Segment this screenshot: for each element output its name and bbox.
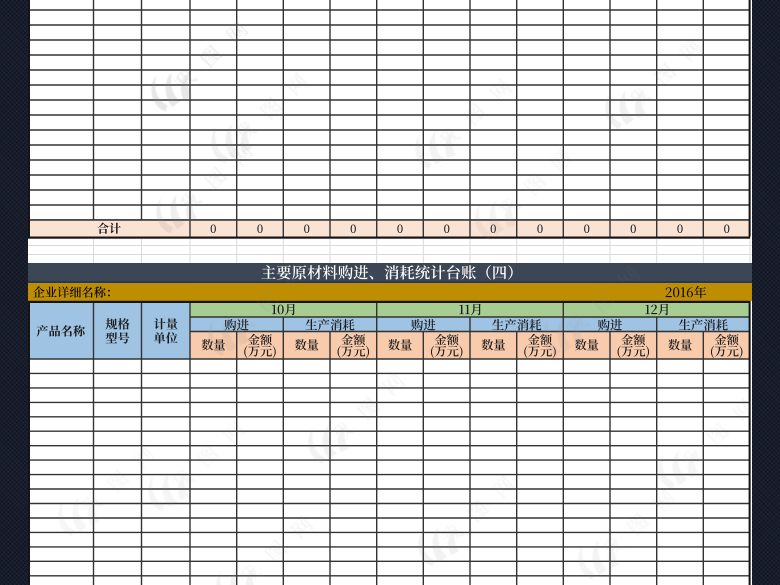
svg-text:0: 0	[677, 222, 683, 236]
svg-text:0: 0	[444, 222, 450, 236]
svg-text:0: 0	[630, 222, 636, 236]
svg-text:0: 0	[350, 222, 356, 236]
svg-text:0: 0	[397, 222, 403, 236]
svg-text:0: 0	[724, 222, 730, 236]
svg-text:0: 0	[257, 222, 263, 236]
svg-text:0: 0	[210, 222, 216, 236]
svg-text:0: 0	[304, 222, 310, 236]
svg-text:0: 0	[584, 222, 590, 236]
svg-text:0: 0	[537, 222, 543, 236]
